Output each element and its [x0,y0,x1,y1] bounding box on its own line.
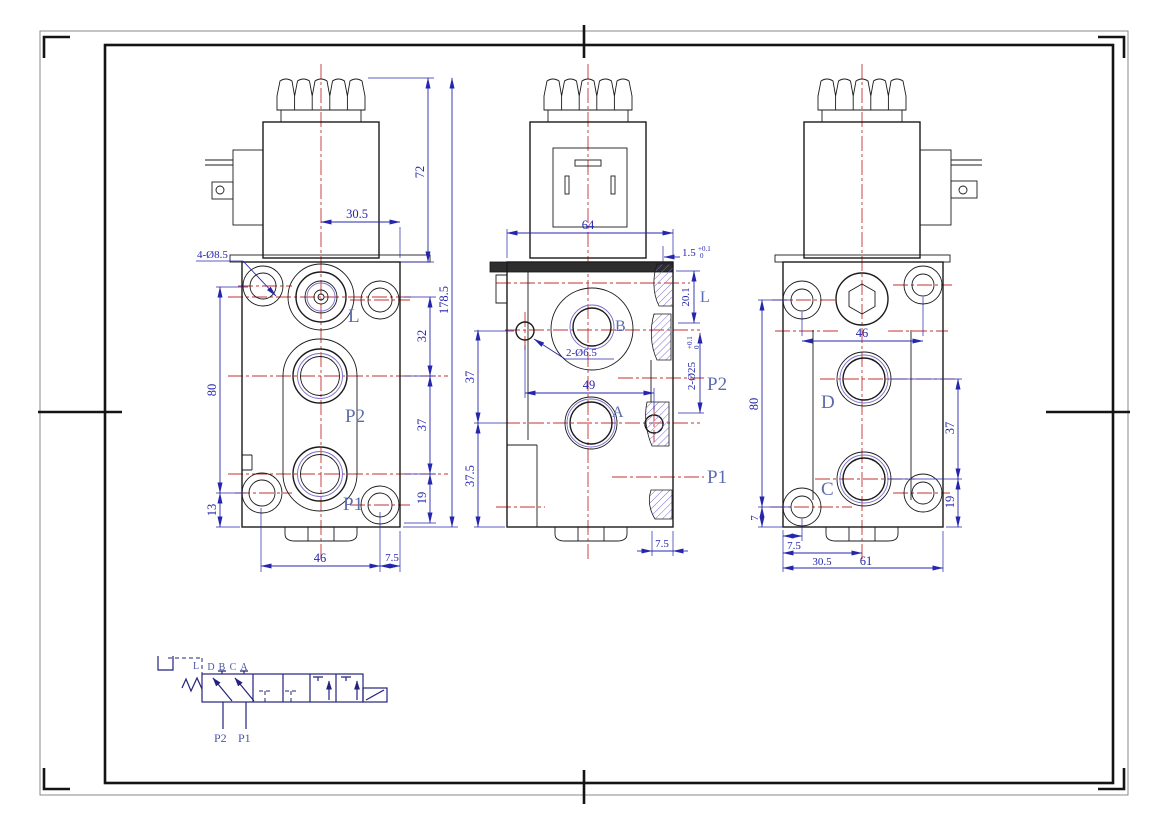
mounting-plate-edge [490,262,673,272]
connector-tab [212,182,233,199]
rear-centerlines [770,64,955,560]
dim-64: 64 [582,218,595,232]
dim-37-5: 37.5 [463,465,477,487]
schematic-label-p2: P2 [214,731,227,745]
cad-drawing-page: 30.5 72 178.5 32 37 19 80 13 46 7.5 4-Ø8… [0,0,1169,826]
schematic-label-p1: P1 [238,731,251,745]
corner-mark-bottom-right [1098,768,1124,789]
position-dividers [253,674,336,702]
corner-mark-top-left [44,37,70,58]
schematic-label-b: B [219,662,226,673]
dim-37: 37 [415,419,429,432]
dim-1-5-tol-lower: 0 [700,252,704,260]
connector-pins [205,160,233,165]
schematic-drain-label: L [193,661,199,672]
front-port-label-l: L [348,306,360,327]
blocked-ports-right [313,677,351,681]
b-port-bore [573,308,611,346]
connector-tab [951,181,977,198]
dim-46: 46 [314,551,327,565]
dim-19: 19 [943,496,957,509]
connector-tab-hole [959,186,967,194]
blocked-ports-center [259,691,297,702]
front-centerlines [228,64,448,560]
flow-arrow-2 [235,678,254,701]
body-outline [507,262,673,527]
dim-7-5: 7.5 [787,540,801,552]
callout-2-holes: 2-Ø6.5 [566,347,597,359]
solenoid-diagonal [366,690,384,700]
corner-mark-top-right [1098,37,1124,58]
inner-border [105,45,1113,783]
dim-72: 72 [413,166,427,179]
outer-border [40,31,1128,795]
dim-30-5: 30.5 [346,207,368,221]
body-outline [783,262,943,527]
hatch-zone-4 [649,490,672,519]
schematic-label-c: C [230,662,237,673]
dim-30-5: 30.5 [812,556,832,568]
front-port-label-p1: P1 [343,494,363,515]
spring-symbol [182,678,202,691]
dim-19: 19 [415,492,429,505]
rear-coil-assembly [804,79,982,258]
side-port-label-b: B [615,318,626,335]
front-valve-body [230,255,430,541]
hydraulic-symbol: L D B C A P2 P1 [158,656,387,745]
dim-2-d25: 2-Ø25 [686,361,698,390]
callout-4-holes: 4-Ø8.5 [197,249,228,261]
rear-valve-body [775,255,950,541]
side-port-label-l: L [700,289,710,306]
dim-37: 37 [943,422,957,435]
drawing-canvas: 30.5 72 178.5 32 37 19 80 13 46 7.5 4-Ø8… [0,0,1169,826]
dim-49: 49 [583,378,596,392]
dim-80: 80 [205,384,219,397]
internal-contour [507,272,537,527]
hatch-zone-3 [646,402,669,446]
dim-7: 7 [749,515,761,521]
dim-61: 61 [860,554,873,568]
p-port-stubs [223,702,246,729]
connector-block [233,150,263,225]
dim-80: 80 [747,398,761,411]
rear-view: 46 37 19 80 7 7.5 30.5 61 D C [747,64,982,572]
connector-pins [951,160,982,165]
hatch-zone-2 [651,314,671,360]
front-view: 30.5 72 178.5 32 37 19 80 13 46 7.5 4-Ø8… [196,64,458,572]
side-port-label-a: A [612,404,624,421]
flow-arrow-1 [213,678,232,701]
side-view: 64 1.5 +0.1 0 20.1 +0.1 0 2-Ø25 49 37 37… [463,64,727,560]
dim-bore-tol-lower: 0 [693,345,701,349]
connector-pin-right [611,176,615,194]
side-port-label-p2: P2 [707,374,727,395]
dim-20-1: 20.1 [680,287,692,306]
side-port-label-p1: P1 [707,467,727,488]
dim-7-5-bottom: 7.5 [655,538,669,550]
dim-37: 37 [463,371,477,384]
dim-1-5: 1.5 [682,247,696,259]
side-valve-body [490,262,673,541]
dim-46: 46 [856,326,869,340]
rear-port-label-d: D [821,392,835,413]
front-port-label-p2: P2 [345,406,365,427]
bottom-nut [555,527,627,541]
dim-13: 13 [205,504,219,517]
connector-pin-left [565,176,569,194]
side-tab [496,275,507,303]
rear-dimensions: 46 37 19 80 7 7.5 30.5 61 [747,297,962,572]
body-notch [242,455,252,470]
rear-port-label-c: C [821,479,834,500]
dim-32: 32 [415,330,429,343]
connector-block [920,150,951,225]
front-coil-assembly [205,79,379,258]
schematic-label-d: D [207,662,214,673]
front-dimensions: 30.5 72 178.5 32 37 19 80 13 46 7.5 4-Ø8… [196,78,458,572]
hatch-zone-1 [654,264,673,306]
dim-7-5: 7.5 [385,552,399,564]
connector-tab-hole [216,186,224,194]
schematic-label-a: A [240,662,248,673]
corner-mark-bottom-left [44,768,70,789]
dim-178-5: 178.5 [437,286,451,314]
